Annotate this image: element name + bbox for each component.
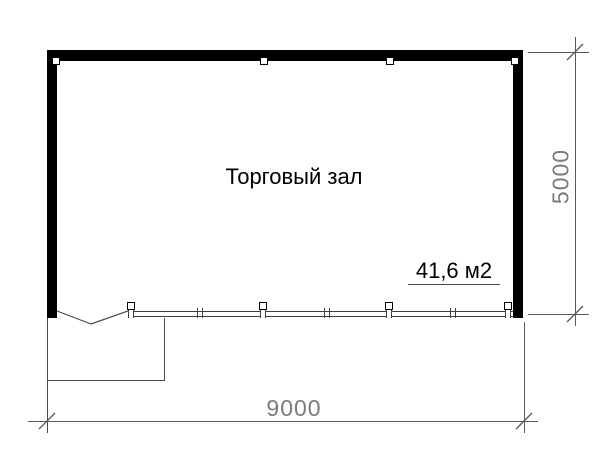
window-post-stem <box>128 310 134 318</box>
room-label: Торговый зал <box>225 166 362 188</box>
door-leaf-line <box>91 311 128 324</box>
porch-left-and-extension-line <box>47 318 48 433</box>
door-leaf-line <box>57 311 91 324</box>
height-extension-line-top <box>528 52 589 53</box>
column-marker <box>52 57 60 65</box>
width-extension-line-right <box>524 322 525 433</box>
height-extension-line-bottom <box>528 314 589 315</box>
window-mullion <box>324 308 330 318</box>
floor-plan-canvas: 9000 5000 Торговый зал 41,6 м2 <box>0 0 600 458</box>
height-dimension-line <box>575 37 576 326</box>
porch-right-line <box>164 318 165 381</box>
window-post-square <box>127 302 135 310</box>
width-dimension-line <box>28 421 538 422</box>
top-wall <box>47 50 523 61</box>
window-mullion <box>450 308 456 318</box>
column-marker <box>260 57 268 65</box>
right-wall <box>513 50 523 318</box>
diagonal-lines-layer <box>0 0 600 458</box>
window-post-stem <box>505 310 511 318</box>
porch-bottom-line <box>47 380 164 381</box>
window-mullion <box>197 308 203 318</box>
window-post-stem <box>260 310 266 318</box>
height-dimension-label: 5000 <box>550 117 573 237</box>
area-label: 41,6 м2 <box>408 260 500 285</box>
width-dimension-label: 9000 <box>234 397 354 420</box>
left-wall <box>47 50 57 318</box>
window-post-square <box>385 302 393 310</box>
window-post-square <box>259 302 267 310</box>
column-marker <box>511 57 519 65</box>
window-post-stem <box>386 310 392 318</box>
window-post-square <box>504 302 512 310</box>
column-marker <box>386 57 394 65</box>
